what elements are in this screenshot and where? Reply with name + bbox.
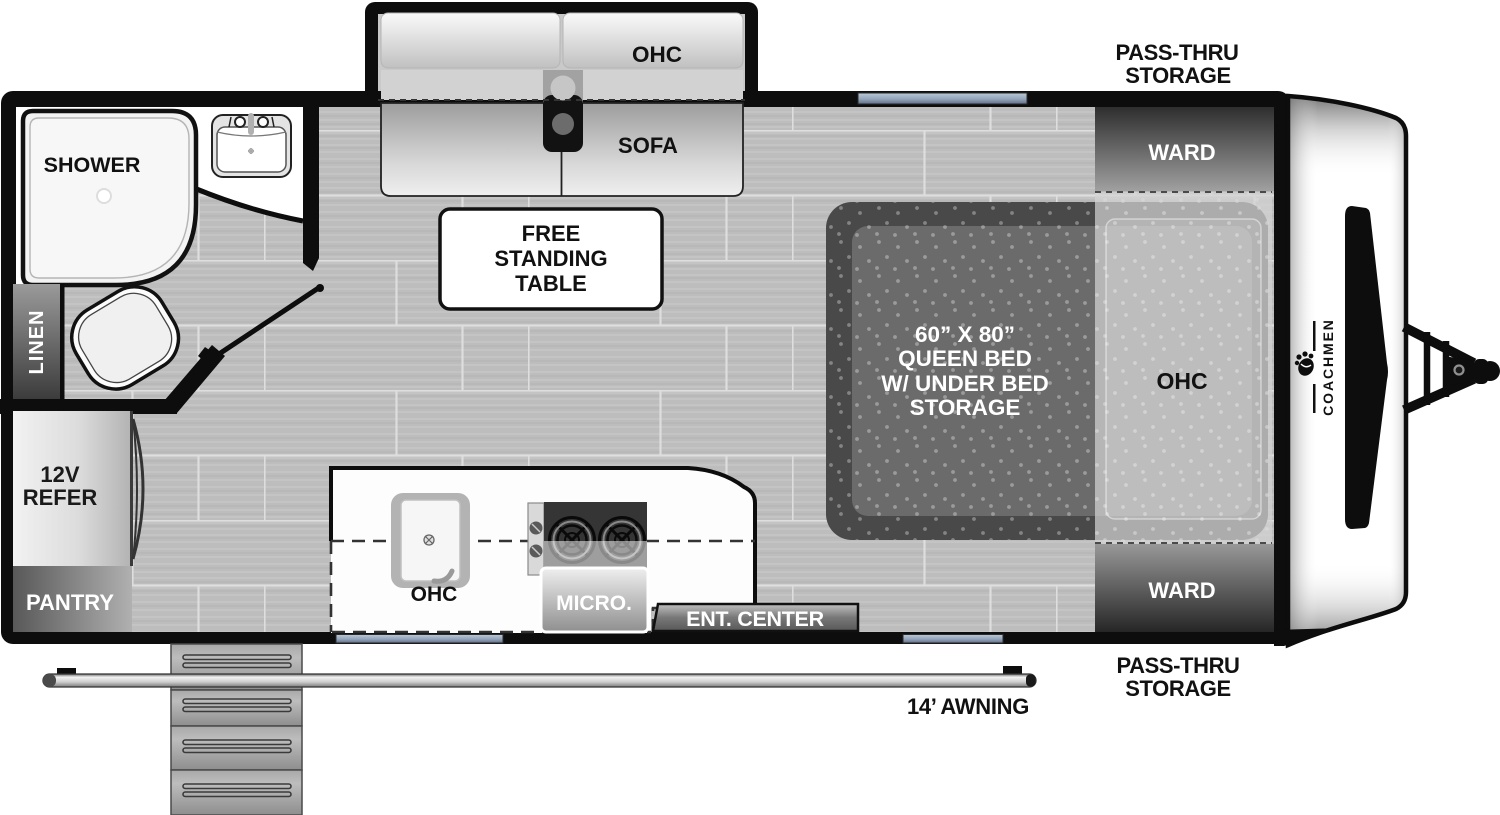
svg-text:12V: 12V xyxy=(40,462,79,487)
svg-text:PASS-THRU: PASS-THRU xyxy=(1116,653,1239,678)
svg-text:MICRO.: MICRO. xyxy=(556,592,632,615)
svg-text:OHC: OHC xyxy=(632,42,682,67)
svg-text:REFER: REFER xyxy=(23,485,98,510)
svg-text:LINEN: LINEN xyxy=(26,310,48,375)
svg-text:ENT. CENTER: ENT. CENTER xyxy=(686,607,824,631)
svg-text:TABLE: TABLE xyxy=(515,271,587,296)
svg-text:WARD: WARD xyxy=(1148,140,1215,165)
svg-text:WARD: WARD xyxy=(1148,578,1215,603)
svg-text:STORAGE: STORAGE xyxy=(1125,676,1231,701)
svg-text:PASS-THRU: PASS-THRU xyxy=(1115,40,1238,65)
svg-text:OHC: OHC xyxy=(411,583,458,606)
svg-text:60” X 80”: 60” X 80” xyxy=(915,322,1015,347)
svg-text:W/ UNDER BED: W/ UNDER BED xyxy=(881,371,1049,396)
svg-text:COACHMEN: COACHMEN xyxy=(1320,318,1336,416)
svg-text:OHC: OHC xyxy=(1156,368,1207,394)
svg-text:PANTRY: PANTRY xyxy=(26,590,114,615)
svg-text:STORAGE: STORAGE xyxy=(1125,63,1231,88)
svg-text:SOFA: SOFA xyxy=(618,133,678,158)
svg-text:14’ AWNING: 14’ AWNING xyxy=(907,694,1029,719)
svg-text:QUEEN BED: QUEEN BED xyxy=(898,346,1032,371)
svg-text:STANDING: STANDING xyxy=(494,246,607,271)
svg-text:SHOWER: SHOWER xyxy=(44,153,141,177)
svg-text:FREE: FREE xyxy=(522,221,581,246)
svg-text:STORAGE: STORAGE xyxy=(910,395,1021,420)
